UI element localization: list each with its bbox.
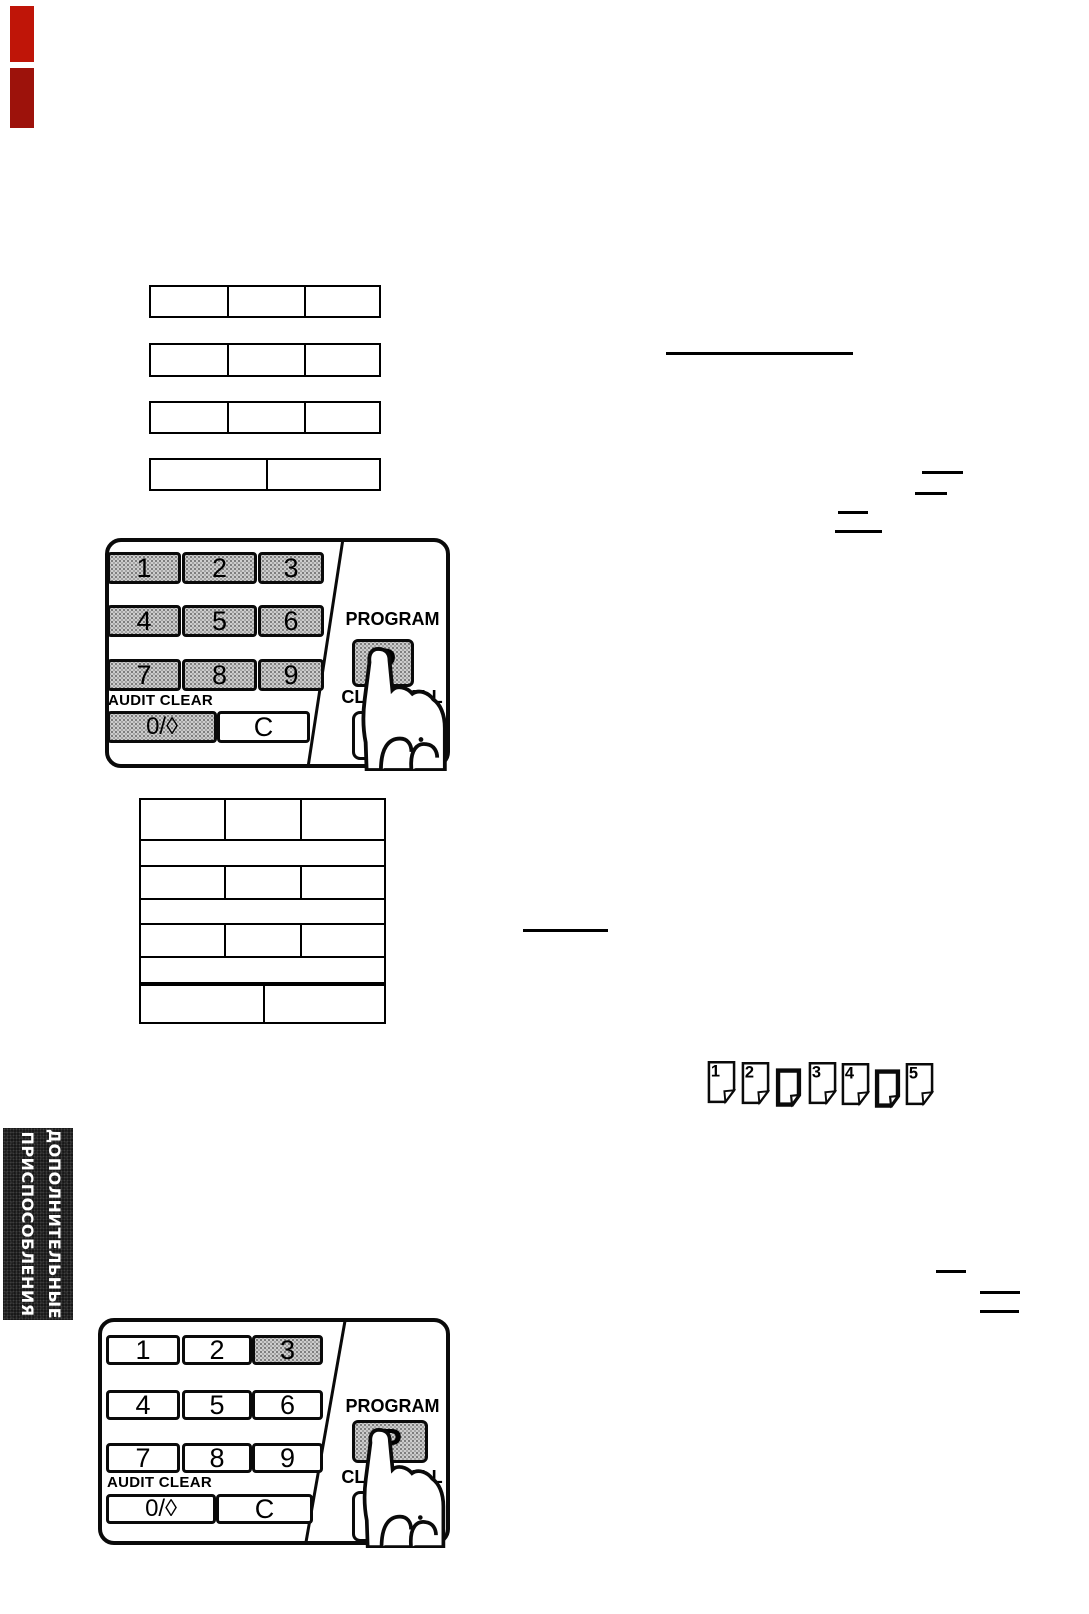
key-clear: C: [216, 1494, 313, 1524]
pointing-finger: [351, 647, 449, 771]
manual-page: 1 2 3 4 5 6 7 8 9 AUDIT CLEAR 0/◊ C PROG…: [0, 0, 1089, 1614]
svg-text:5: 5: [909, 1065, 918, 1083]
underline: [936, 1270, 966, 1273]
empty-table-row-4: [149, 458, 381, 491]
page-icon-insert-2: [872, 1069, 903, 1109]
pointing-finger: [351, 1428, 449, 1548]
audit-clear-label: AUDIT CLEAR: [108, 692, 213, 709]
key-8: 8: [182, 1443, 252, 1473]
key-0-diamond: 0/◊: [106, 1494, 216, 1524]
program-label: PROGRAM: [340, 609, 445, 630]
key-2: 2: [182, 1335, 252, 1365]
program-label: PROGRAM: [340, 1396, 445, 1417]
underline: [922, 471, 963, 474]
key-1: 1: [106, 1335, 180, 1365]
section-tab: ДОПОЛНИТЕЛЬНЫЕ ПРИСПОСОБЛЕНИЯ: [3, 1128, 73, 1320]
key-3: 3: [252, 1335, 323, 1365]
page-icon-4: 4: [841, 1062, 870, 1107]
page-icon-1: 1: [707, 1060, 736, 1105]
empty-table-grid: [139, 798, 386, 1024]
section-tab-text: ДОПОЛНИТЕЛЬНЫЕ ПРИСПОСОБЛЕНИЯ: [3, 1128, 73, 1320]
key-3: 3: [258, 552, 324, 584]
underline: [523, 929, 608, 932]
key-6: 6: [258, 605, 324, 637]
svg-text:1: 1: [711, 1063, 720, 1081]
underline: [915, 492, 947, 495]
key-1: 1: [107, 552, 181, 584]
page-icon-3: 3: [808, 1061, 837, 1106]
key-8: 8: [182, 659, 257, 691]
page-icon-insert-1: [773, 1068, 804, 1108]
key-7: 7: [106, 1443, 180, 1473]
key-4: 4: [107, 605, 181, 637]
underline: [980, 1291, 1020, 1294]
key-6: 6: [252, 1390, 323, 1420]
key-5: 5: [182, 1390, 252, 1420]
underline: [838, 511, 868, 514]
audit-clear-label: AUDIT CLEAR: [107, 1474, 212, 1491]
red-edge-mark-bottom: [10, 68, 34, 128]
key-4: 4: [106, 1390, 180, 1420]
key-9: 9: [258, 659, 324, 691]
underline: [666, 352, 853, 355]
underline: [980, 1310, 1019, 1313]
key-0-diamond: 0/◊: [107, 711, 217, 743]
page-icon-2: 2: [741, 1061, 770, 1106]
svg-text:4: 4: [845, 1065, 855, 1083]
key-2: 2: [182, 552, 257, 584]
underline: [835, 530, 882, 533]
empty-table-row-2: [149, 343, 381, 377]
svg-text:3: 3: [812, 1064, 821, 1082]
key-5: 5: [182, 605, 257, 637]
key-7: 7: [107, 659, 181, 691]
key-9: 9: [252, 1443, 323, 1473]
page-icon-5: 5: [905, 1062, 934, 1107]
empty-table-row-1: [149, 285, 381, 318]
svg-text:2: 2: [745, 1064, 754, 1082]
empty-table-row-3: [149, 401, 381, 434]
key-clear: C: [217, 711, 310, 743]
red-edge-mark-top: [10, 6, 34, 62]
